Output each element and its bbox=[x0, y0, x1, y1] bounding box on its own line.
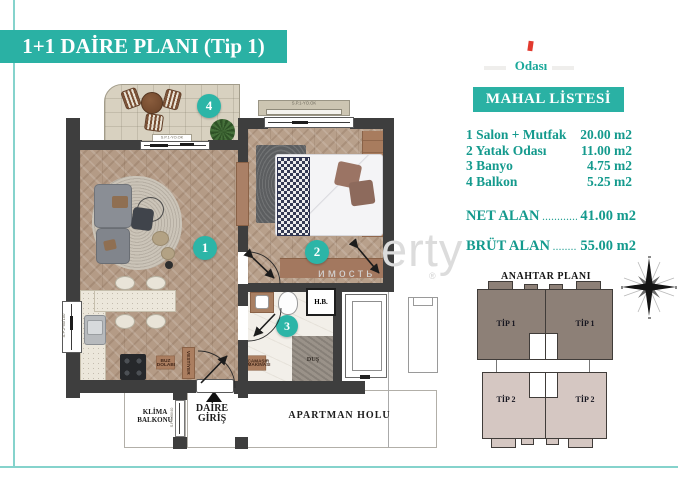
window-glass-line bbox=[268, 122, 350, 123]
window-spec-tag: S.P.2-50/100 bbox=[62, 312, 66, 338]
brut-alan-label: BRÜT ALAN bbox=[466, 238, 550, 255]
brut-alan-row: BRÜT ALAN .............. 55.00 m2 bbox=[466, 238, 636, 255]
wall-segment bbox=[234, 381, 365, 394]
washing-machine-label: MAKİNASI bbox=[248, 363, 266, 366]
side-table bbox=[112, 196, 128, 208]
washing-machine-box: ÇAMAŞIR MAKİNASI bbox=[247, 355, 266, 370]
stair-shaft-notch bbox=[413, 297, 433, 306]
brut-alan-value: 55.00 m2 bbox=[580, 238, 636, 255]
bed-pillow bbox=[348, 179, 375, 206]
wall-segment bbox=[66, 118, 80, 398]
left-frame-line bbox=[13, 0, 15, 467]
stair-shaft bbox=[408, 297, 438, 373]
room-area: 20.00 m2 bbox=[580, 127, 632, 143]
floor-lamp bbox=[165, 261, 173, 269]
shower-label: DUŞ bbox=[307, 355, 320, 362]
key-plan-core bbox=[529, 333, 558, 360]
room-name: 2 Yatak Odası bbox=[466, 143, 547, 159]
dotted-leader: .................. bbox=[542, 213, 577, 222]
room-area: 5.25 m2 bbox=[587, 174, 632, 190]
key-plan-roof-tab bbox=[546, 438, 559, 445]
bar-stool bbox=[146, 314, 166, 329]
odasi-text: Odası bbox=[503, 58, 559, 73]
key-plan-unit-label: TİP 2 bbox=[486, 394, 526, 405]
bar-stool bbox=[115, 314, 135, 329]
watermark-registered-icon: ® bbox=[429, 271, 436, 281]
key-plan-connector bbox=[496, 360, 497, 372]
wall-segment bbox=[66, 140, 142, 150]
coffee-table bbox=[131, 207, 155, 232]
balcony-table bbox=[141, 92, 163, 114]
net-alan-label: NET ALAN bbox=[466, 208, 539, 225]
key-plan-divider bbox=[545, 372, 546, 439]
key-plan-core bbox=[529, 372, 558, 398]
refrigerator-label-box: BUZ DOLABI bbox=[156, 356, 175, 370]
corridor-line bbox=[388, 292, 389, 448]
hb-label: H.B. bbox=[314, 298, 328, 306]
watermark-text-small: имость bbox=[318, 266, 375, 280]
key-plan-unit-label: TİP 1 bbox=[565, 318, 605, 329]
room-area: 4.75 m2 bbox=[587, 158, 632, 174]
pouf bbox=[161, 247, 175, 260]
key-plan-connector bbox=[589, 360, 590, 372]
room-name: 1 Salon + Mutfak bbox=[466, 127, 566, 143]
window-spec-tag: S.P.3-90/40 bbox=[170, 405, 174, 429]
hb-shaft-box: H.B. bbox=[306, 288, 336, 316]
room-list-row: 1 Salon + Mutfak 20.00 m2 bbox=[466, 127, 632, 142]
entrance-label: DAİRE GİRİŞ bbox=[186, 404, 238, 424]
mahal-listesi-header: MAHAL LİSTESİ bbox=[473, 87, 624, 112]
wall-stub bbox=[235, 437, 248, 449]
bedroom-door-opening bbox=[238, 252, 248, 284]
wall-segment bbox=[66, 380, 196, 393]
bar-stool bbox=[115, 276, 135, 290]
key-plan-unit-label: TİP 1 bbox=[486, 318, 526, 329]
net-alan-row: NET ALAN .................. 41.00 m2 bbox=[466, 208, 636, 225]
coat-closet-label: VESTİYER bbox=[186, 351, 191, 375]
window-spec-tag: S.P.1-YO.OK bbox=[279, 101, 329, 105]
room-name: 3 Banyo bbox=[466, 158, 513, 174]
room-list-row: 2 Yatak Odası 11.00 m2 bbox=[466, 143, 632, 158]
wall-stub bbox=[173, 393, 187, 400]
window-spec-tag: S.P.1-YO.OK bbox=[156, 136, 188, 140]
key-plan-roof-tab bbox=[568, 438, 593, 448]
window-handle bbox=[70, 316, 73, 330]
elevator-car bbox=[352, 301, 382, 371]
room-badge-bathroom: 3 bbox=[276, 315, 298, 337]
key-plan-unit-label: TİP 2 bbox=[565, 394, 605, 405]
room-area: 11.00 m2 bbox=[581, 143, 632, 159]
key-plan-roof-tab bbox=[521, 438, 534, 445]
pouf bbox=[152, 231, 169, 246]
bottom-frame-line bbox=[0, 466, 678, 468]
entrance-threshold bbox=[196, 379, 234, 393]
room-name: 4 Balkon bbox=[466, 174, 517, 190]
room-badge-bedroom: 2 bbox=[305, 240, 329, 264]
ac-balcony-window bbox=[175, 400, 185, 437]
toilet bbox=[278, 291, 298, 315]
shower-area: DUŞ bbox=[292, 336, 334, 381]
window-handle bbox=[292, 121, 308, 124]
compass-rose-icon bbox=[620, 256, 678, 320]
watermark-text: erty bbox=[381, 222, 463, 277]
bathroom-sink bbox=[255, 295, 269, 309]
apartment-hall-label: APARTMAN HOLU bbox=[262, 410, 417, 421]
coat-closet-box: VESTİYER bbox=[182, 347, 195, 379]
net-alan-value: 41.00 m2 bbox=[580, 208, 636, 225]
dotted-leader: .............. bbox=[553, 243, 577, 252]
wall-stub bbox=[173, 437, 187, 449]
bed-blanket bbox=[277, 157, 310, 236]
door-handle bbox=[150, 144, 168, 147]
kitchen-island-counter bbox=[94, 290, 176, 312]
key-plan-divider bbox=[545, 289, 546, 360]
window-glass-line bbox=[179, 403, 180, 434]
room-badge-living: 1 bbox=[193, 236, 217, 260]
bathroom-door-opening bbox=[238, 306, 248, 340]
balcony-chair bbox=[144, 113, 164, 132]
room-badge-balcony: 4 bbox=[197, 94, 221, 118]
red-logo-mark bbox=[527, 41, 533, 52]
sliding-door-panel bbox=[236, 162, 249, 226]
room-list-row: 4 Balkon 5.25 m2 bbox=[466, 174, 632, 189]
room-list-row: 3 Banyo 4.75 m2 bbox=[466, 158, 632, 173]
label-line: GİRİŞ bbox=[186, 414, 238, 424]
refrigerator-label: DOLABI bbox=[157, 363, 174, 367]
bedroom-window-sill bbox=[266, 109, 342, 115]
door-handle bbox=[180, 143, 194, 146]
elevator-door-mark bbox=[360, 375, 370, 379]
page-title: 1+1 DAİRE PLANI (Tip 1) bbox=[0, 30, 287, 63]
cooktop bbox=[120, 354, 146, 380]
floor-plan-sheet: 1+1 DAİRE PLANI (Tip 1) Odası MAHAL LİST… bbox=[0, 0, 678, 480]
bar-stool bbox=[146, 276, 166, 290]
sink-basin bbox=[87, 320, 103, 335]
key-plan-roof-tab bbox=[491, 438, 516, 448]
